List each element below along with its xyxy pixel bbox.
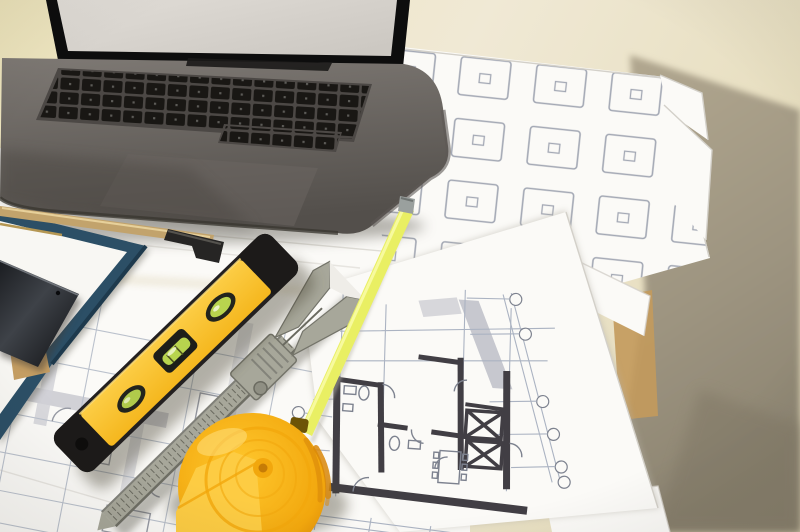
photo-architect-desk [0,0,800,532]
vignette [0,0,800,532]
